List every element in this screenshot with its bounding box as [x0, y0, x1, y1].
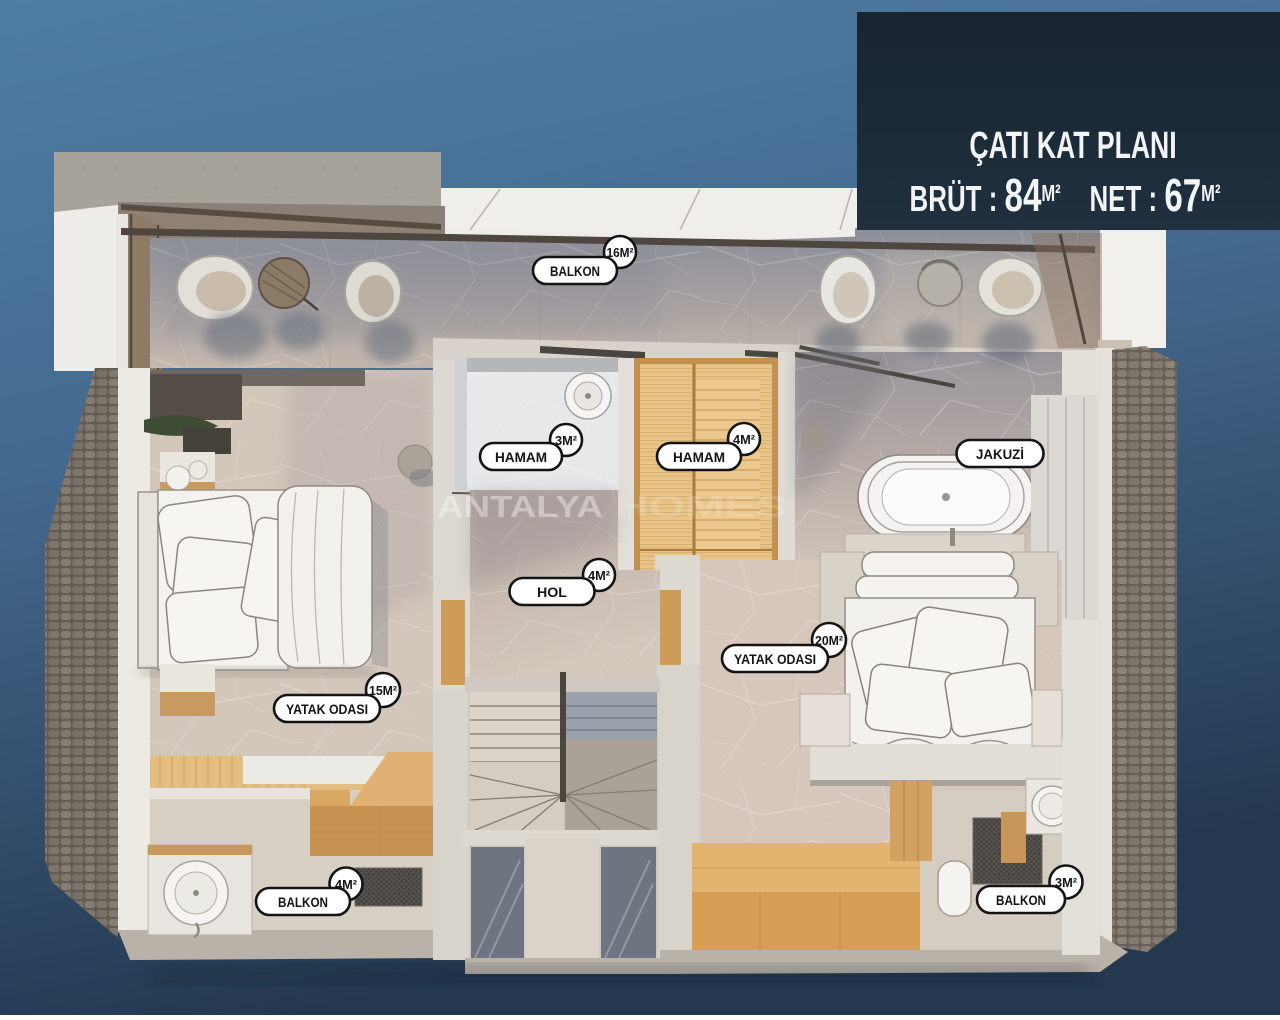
svg-text:YATAK ODASI: YATAK ODASI — [734, 651, 816, 667]
svg-text:BRÜT : 84M² NET : 67M²: BRÜT : 84M² NET : 67M² — [910, 171, 1221, 221]
svg-text:YATAK ODASI: YATAK ODASI — [286, 701, 368, 717]
svg-text:4M²: 4M² — [588, 568, 611, 583]
svg-text:HOMES: HOMES — [615, 489, 787, 524]
svg-text:BALKON: BALKON — [278, 894, 328, 910]
svg-text:BALKON: BALKON — [550, 263, 600, 279]
svg-text:ÇATI KAT PLANI: ÇATI KAT PLANI — [969, 123, 1176, 166]
svg-text:ANTALYA: ANTALYA — [437, 489, 603, 524]
svg-text:HAMAM: HAMAM — [495, 449, 547, 465]
svg-text:HAMAM: HAMAM — [673, 449, 725, 465]
svg-text:HOL: HOL — [537, 584, 567, 600]
svg-text:JAKUZİ: JAKUZİ — [976, 446, 1024, 462]
svg-text:BALKON: BALKON — [996, 892, 1046, 908]
